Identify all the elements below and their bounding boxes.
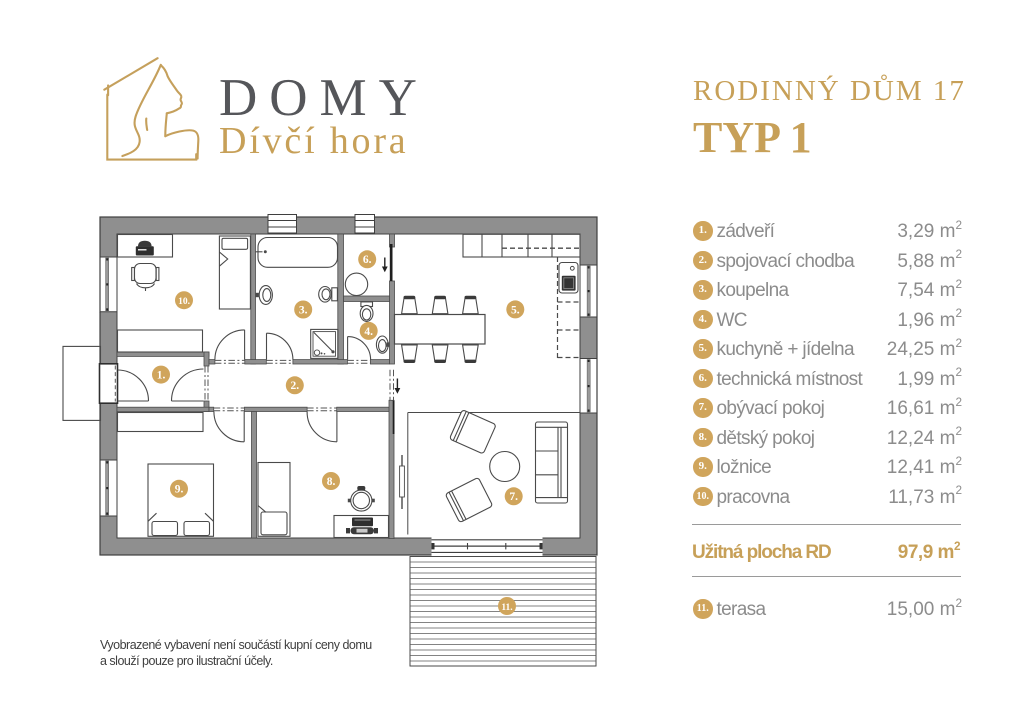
svg-text:6.: 6.: [363, 254, 372, 266]
svg-text:1.: 1.: [157, 370, 166, 382]
svg-text:5.: 5.: [511, 304, 520, 316]
svg-text:7.: 7.: [509, 491, 518, 503]
svg-text:3.: 3.: [299, 304, 308, 316]
svg-text:11.: 11.: [501, 603, 512, 613]
svg-text:9.: 9.: [175, 484, 184, 496]
svg-text:4.: 4.: [364, 326, 373, 338]
svg-text:10.: 10.: [178, 297, 190, 307]
svg-text:8.: 8.: [327, 476, 336, 488]
svg-text:2.: 2.: [290, 380, 299, 392]
